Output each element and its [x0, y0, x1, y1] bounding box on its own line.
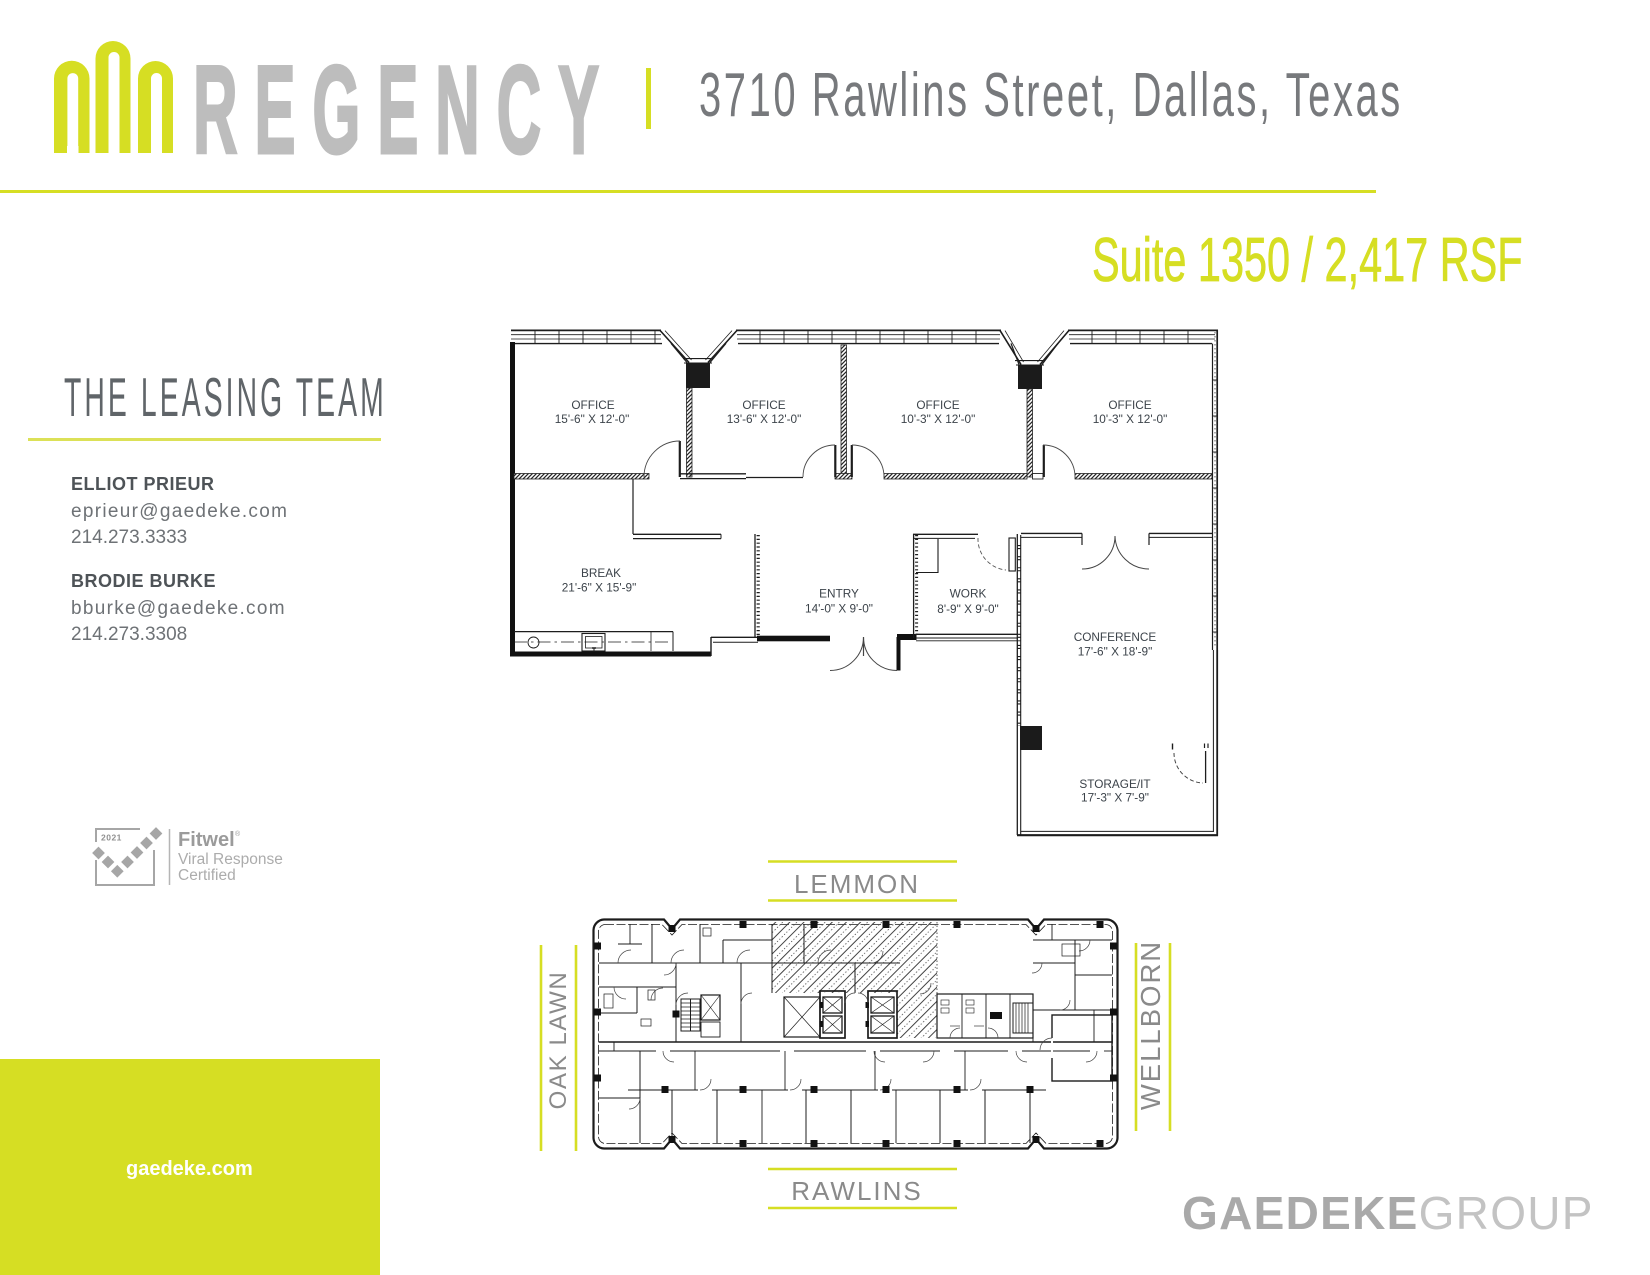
svg-text:10'-3" X 12'-0": 10'-3" X 12'-0" [901, 412, 976, 426]
svg-text:OFFICE: OFFICE [742, 398, 785, 412]
svg-text:13'-6" X 12'-0": 13'-6" X 12'-0" [727, 412, 802, 426]
svg-text:LEMMON: LEMMON [794, 869, 920, 899]
svg-text:WELLBORN: WELLBORN [1135, 940, 1166, 1110]
svg-text:ENTRY: ENTRY [819, 587, 859, 601]
svg-text:10'-3" X 12'-0": 10'-3" X 12'-0" [1093, 412, 1168, 426]
svg-text:RAWLINS: RAWLINS [791, 1176, 923, 1206]
svg-text:WORK: WORK [950, 587, 987, 601]
svg-text:OFFICE: OFFICE [571, 398, 614, 412]
svg-text:21'-6" X 15'-9": 21'-6" X 15'-9" [562, 581, 637, 595]
svg-text:14'-0" X 9'-0": 14'-0" X 9'-0" [805, 602, 873, 616]
svg-text:BREAK: BREAK [581, 566, 621, 580]
svg-text:CONFERENCE: CONFERENCE [1074, 630, 1157, 644]
svg-text:17'-6" X 18'-9": 17'-6" X 18'-9" [1078, 645, 1153, 659]
svg-text:STORAGE/IT: STORAGE/IT [1079, 777, 1150, 791]
svg-text:OFFICE: OFFICE [916, 398, 959, 412]
svg-text:15'-6" X 12'-0": 15'-6" X 12'-0" [555, 412, 630, 426]
svg-text:OFFICE: OFFICE [1108, 398, 1151, 412]
svg-text:OAK LAWN: OAK LAWN [545, 971, 572, 1110]
svg-text:17'-3" X 7'-9": 17'-3" X 7'-9" [1081, 791, 1149, 805]
svg-text:8'-9" X 9'-0": 8'-9" X 9'-0" [937, 602, 998, 616]
